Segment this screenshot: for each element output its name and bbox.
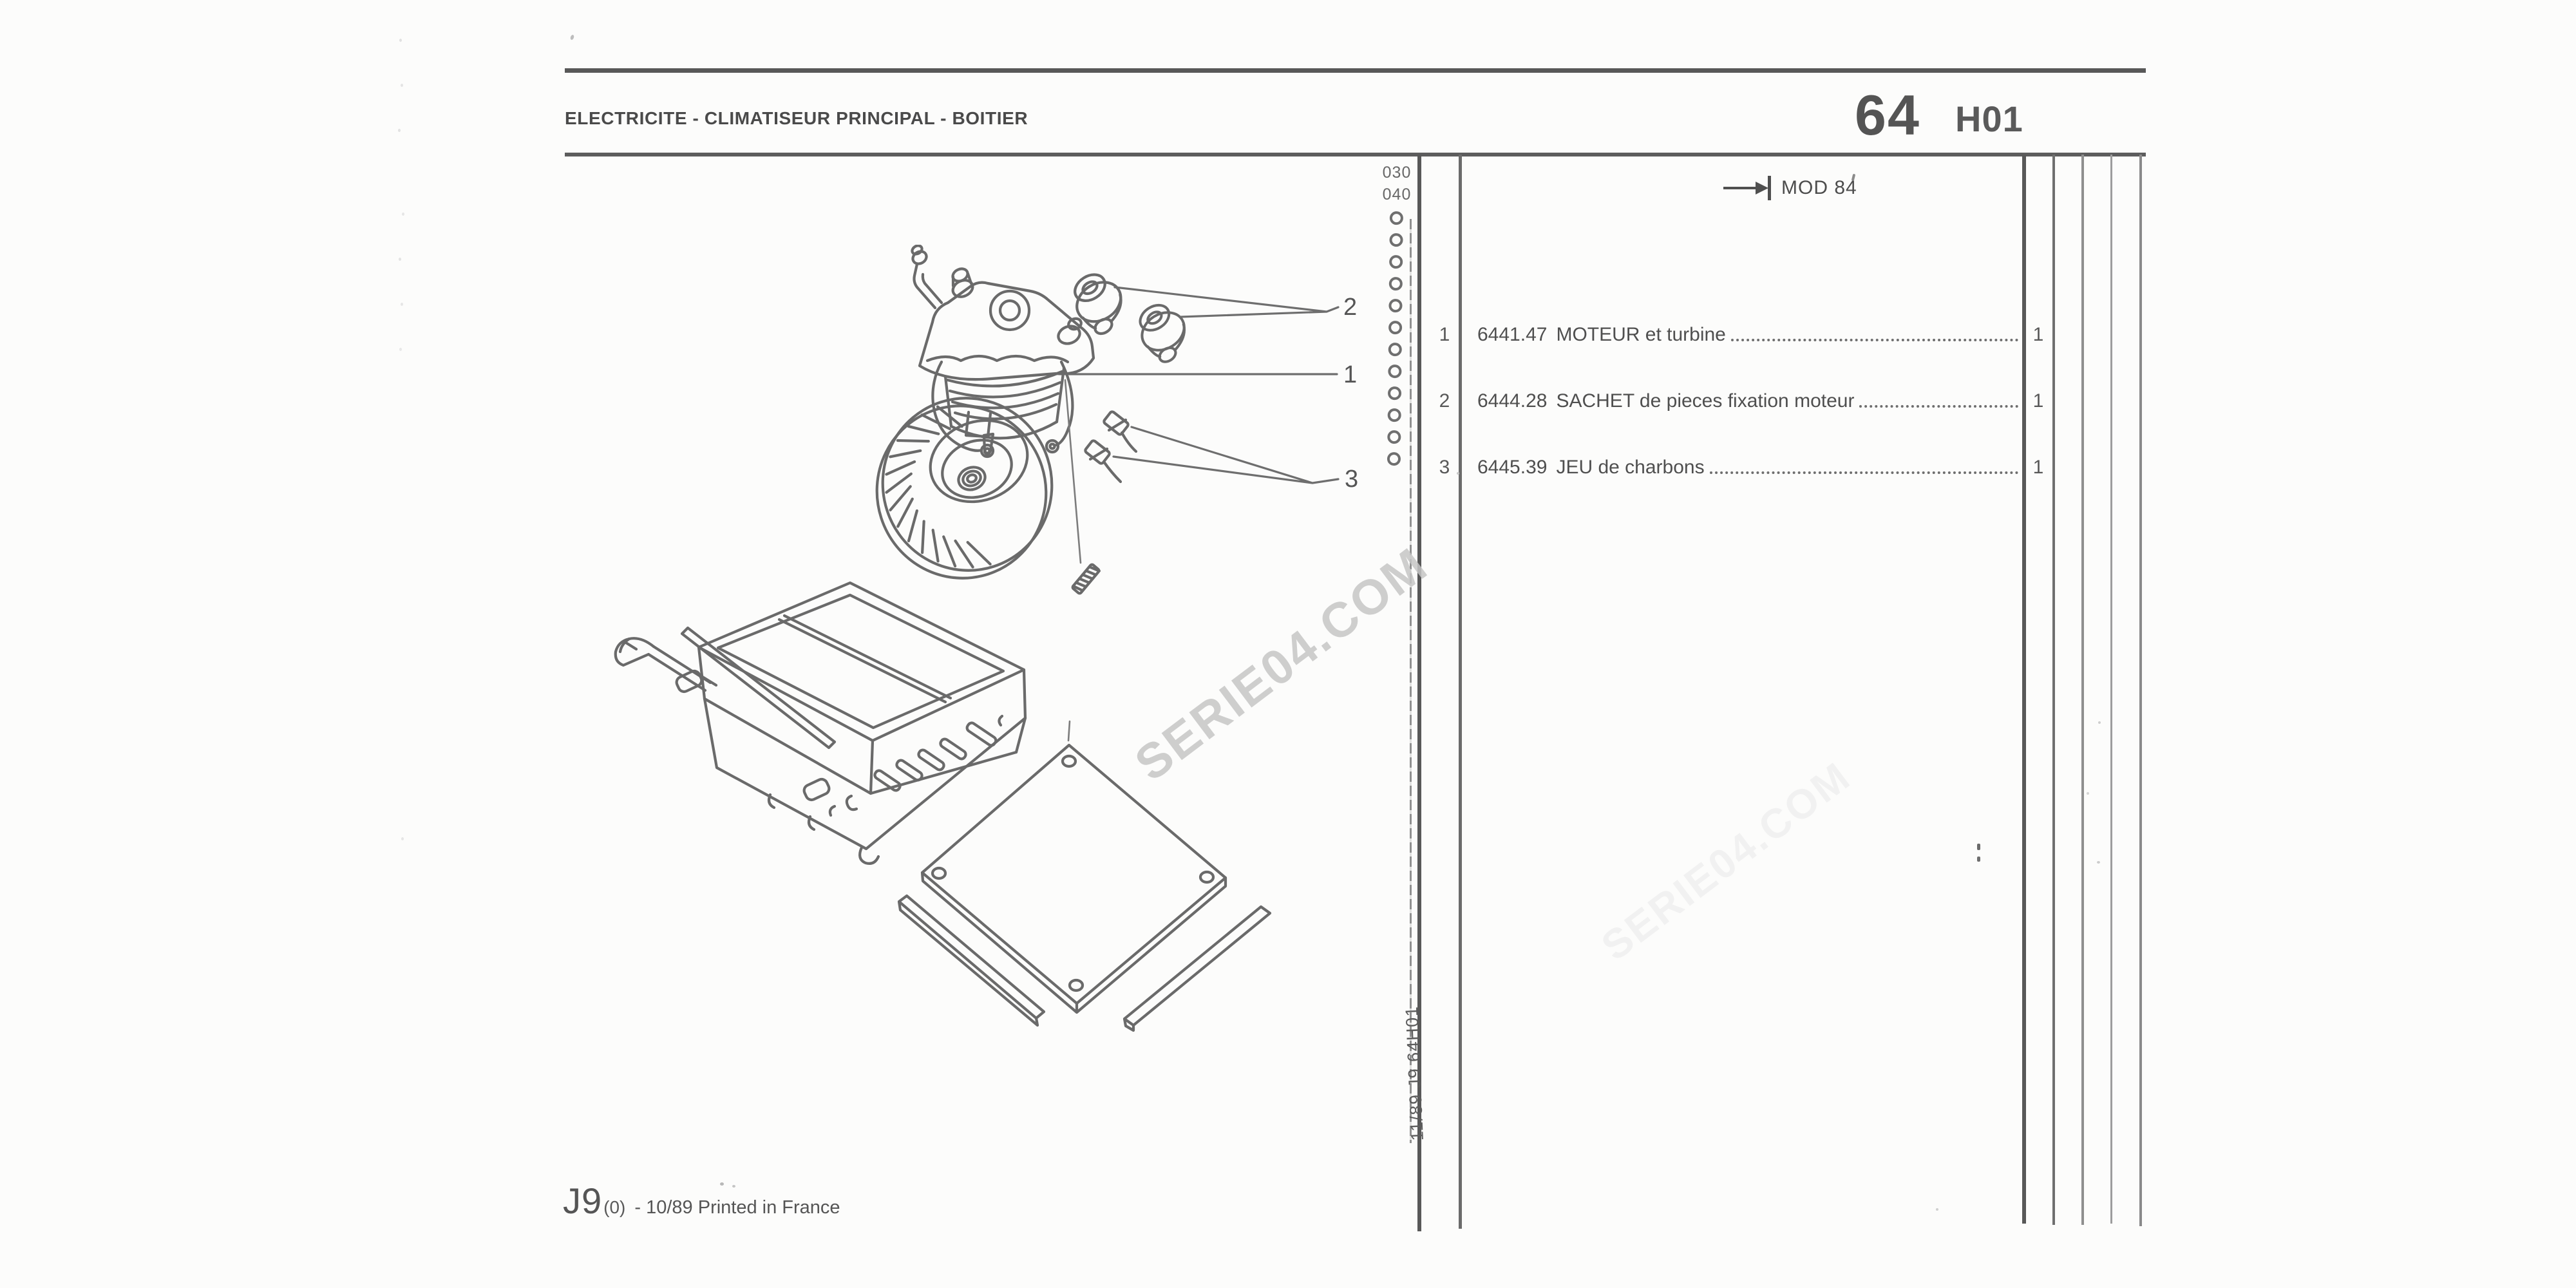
page-edge-line [2052, 155, 2055, 1225]
mod-arrow-stop-bar [1768, 176, 1771, 200]
header-rule-top [565, 68, 2146, 73]
margin-ref-040: 040 [1382, 185, 1412, 204]
item-number: 2 [1428, 387, 1461, 415]
item-number: 1 [1428, 321, 1461, 349]
item-number: 3 [1428, 453, 1461, 482]
cage-slat [943, 536, 955, 566]
binder-hole [1390, 211, 1403, 225]
threaded-pin [1065, 380, 1100, 741]
exploded-diagram: 1 2 3 [567, 245, 1365, 1056]
binder-hole [1389, 233, 1403, 247]
binder-hole [1388, 299, 1402, 312]
callout-label-3: 3 [1345, 466, 1358, 493]
page-edge-line [2081, 155, 2084, 1225]
callout-label-1: 1 [1343, 361, 1357, 388]
dotted-leader [1710, 471, 2018, 474]
binder-hole [1389, 255, 1403, 269]
dotted-leader [1731, 339, 2018, 341]
cage-slat [909, 511, 917, 541]
cage-slat [922, 521, 924, 553]
part-qty: 1 [2024, 453, 2052, 482]
motor-bracket [911, 245, 1094, 379]
sealing-strip [899, 896, 1270, 1030]
part-ref: 6445.39 [1477, 453, 1547, 482]
part-row: 6444.28 SACHET de pieces fixation moteur [1477, 387, 2020, 415]
part-row: 6445.39 JEU de charbons [1477, 453, 2020, 482]
footer-imprint: - 10/89 Printed in France [634, 1197, 840, 1218]
part-qty: 1 [2024, 387, 2052, 415]
mod-arrow-head-icon [1756, 182, 1768, 194]
binder-hole [1388, 343, 1402, 356]
mod-arrow-icon [1723, 187, 1757, 189]
binder-hole [1388, 386, 1401, 400]
binder-hole [1388, 321, 1402, 334]
part-name: MOTEUR et turbine [1556, 321, 1725, 349]
binder-hole [1387, 430, 1401, 444]
part-ref: 6444.28 [1477, 387, 1547, 415]
callout-label-2: 2 [1343, 294, 1357, 321]
mod-note-label: MOD 84 [1781, 177, 1857, 199]
binder-dashed-line [1410, 219, 1412, 1143]
part-qty: 1 [2024, 321, 2052, 349]
cage-slat [933, 530, 938, 561]
cage-slat [890, 451, 920, 457]
watermark-ghost: SERIE04.COM [1562, 730, 1889, 992]
mod-note: MOD 84 [1723, 175, 1857, 201]
binder-hole-column [1387, 211, 1403, 474]
binder-hole [1388, 365, 1401, 378]
part-ref: 6441.47 [1477, 321, 1547, 349]
footer: J9 (0) - 10/89 Printed in France [563, 1180, 840, 1222]
part-row: 6441.47 MOTEUR et turbine [1477, 321, 2020, 349]
binder-hole [1389, 277, 1403, 290]
dotted-leader [1859, 405, 2018, 408]
part-name: SACHET de pieces fixation moteur [1556, 387, 1854, 415]
chapter-number: 64 [1855, 82, 1920, 148]
binder-hole [1387, 452, 1401, 466]
cage-slat [909, 426, 939, 434]
part-name: JEU de charbons [1556, 453, 1704, 482]
sheet-code: H01 [1955, 98, 2023, 140]
footer-model: J9 [563, 1180, 602, 1222]
cage-slat [898, 499, 913, 527]
housing-tray [616, 583, 1025, 864]
list-border-right [2022, 155, 2026, 1224]
page-title: ELECTRICITE - CLIMATISEUR PRINCIPAL - BO… [565, 108, 1028, 129]
cage-slat [968, 542, 990, 564]
side-reference-text: 11/89 J9 64H01 [1402, 1005, 1428, 1141]
rubber-grommet [1130, 296, 1197, 367]
cage-slat [886, 462, 914, 475]
binder-hole [1388, 408, 1401, 422]
page-edge-line [2110, 155, 2112, 1224]
list-border-left-inner [1459, 155, 1462, 1229]
header-rule-bottom [565, 153, 2146, 156]
page-edge-line [2139, 155, 2142, 1226]
cage-slat [898, 440, 929, 441]
margin-ref-030: 030 [1382, 164, 1412, 182]
brush-connector [1084, 411, 1136, 482]
footer-model-variant: (0) [603, 1197, 625, 1218]
